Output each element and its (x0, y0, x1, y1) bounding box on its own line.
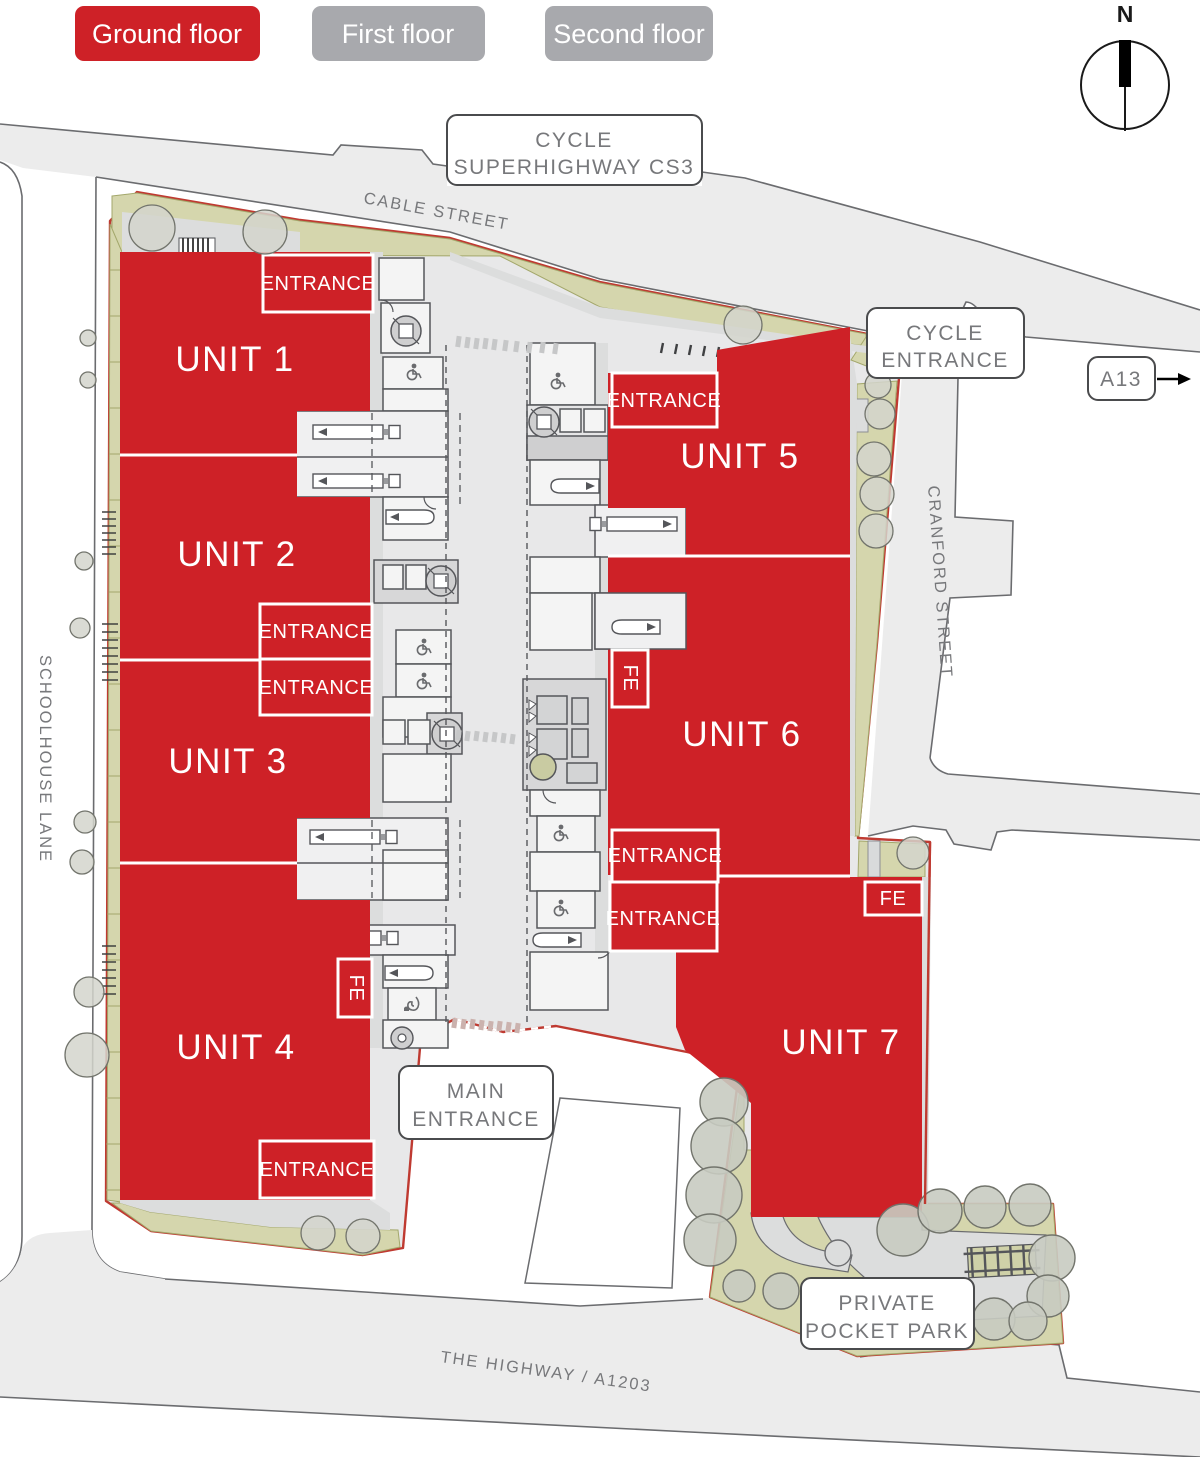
svg-text:SUPERHIGHWAY CS3: SUPERHIGHWAY CS3 (454, 156, 695, 179)
svg-text:A13: A13 (1100, 368, 1142, 391)
svg-text:FE: FE (345, 975, 367, 1002)
svg-text:ENTRANCE: ENTRANCE (260, 1159, 375, 1181)
svg-text:UNIT 3: UNIT 3 (168, 742, 287, 781)
svg-text:UNIT 6: UNIT 6 (682, 715, 801, 754)
svg-text:UNIT 1: UNIT 1 (175, 340, 294, 379)
svg-text:First floor: First floor (342, 19, 455, 49)
svg-text:ENTRANCE: ENTRANCE (259, 677, 374, 699)
svg-text:Ground floor: Ground floor (92, 19, 242, 49)
svg-text:Second floor: Second floor (553, 19, 705, 49)
svg-text:ENTRANCE: ENTRANCE (606, 908, 721, 930)
svg-text:ENTRANCE: ENTRANCE (412, 1108, 540, 1131)
svg-text:POCKET PARK: POCKET PARK (805, 1320, 969, 1343)
svg-text:SCHOOLHOUSE LANE: SCHOOLHOUSE LANE (36, 655, 54, 863)
svg-text:FE: FE (619, 665, 641, 692)
svg-text:ENTRANCE: ENTRANCE (259, 621, 374, 643)
svg-text:N: N (1117, 1, 1134, 27)
svg-text:ENTRANCE: ENTRANCE (261, 273, 376, 295)
svg-text:UNIT 4: UNIT 4 (176, 1028, 295, 1067)
svg-text:ENTRANCE: ENTRANCE (608, 845, 723, 867)
svg-text:ENTRANCE: ENTRANCE (607, 390, 722, 412)
svg-text:CYCLE: CYCLE (906, 322, 984, 345)
svg-text:UNIT 7: UNIT 7 (781, 1023, 900, 1062)
svg-text:MAIN: MAIN (447, 1080, 506, 1103)
svg-text:ENTRANCE: ENTRANCE (881, 349, 1009, 372)
svg-text:CYCLE: CYCLE (535, 129, 613, 152)
svg-text:UNIT 5: UNIT 5 (680, 437, 799, 476)
svg-text:UNIT 2: UNIT 2 (177, 535, 296, 574)
svg-text:PRIVATE: PRIVATE (838, 1292, 935, 1315)
svg-text:FE: FE (880, 888, 907, 910)
